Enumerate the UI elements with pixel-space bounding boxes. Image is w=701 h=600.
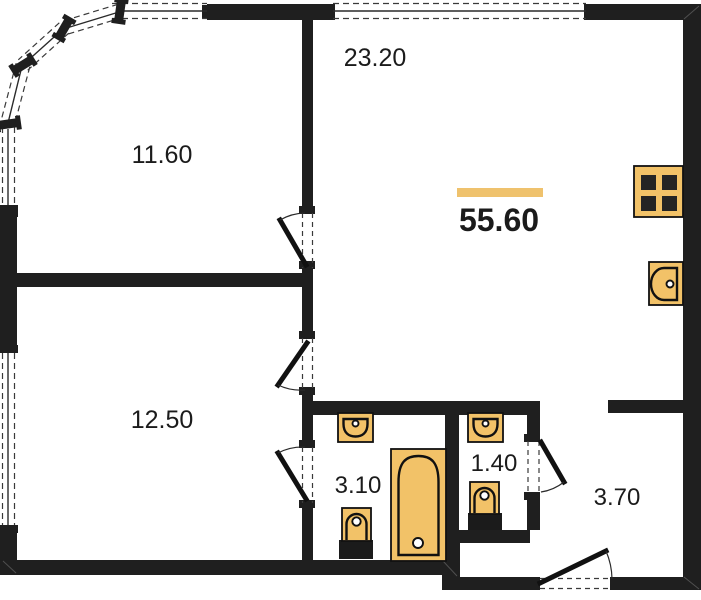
door-jamb: [524, 434, 540, 442]
door-jamb: [524, 492, 540, 500]
wall-segment: [0, 217, 17, 273]
washbasin-icon: [338, 413, 373, 442]
wall-segment: [302, 390, 313, 447]
window-left-lower: [3, 353, 15, 525]
wall-segment: [0, 560, 445, 575]
total-area: 55.60: [457, 188, 543, 238]
room-label-hall: 3.70: [594, 484, 641, 511]
room-label-bedroom-top: 11.60: [132, 141, 193, 169]
door-jamb: [299, 387, 315, 395]
wall-segment: [445, 415, 459, 530]
wall-segment: [302, 268, 313, 338]
room-label-bathroom: 3.10: [335, 472, 382, 499]
wall-segment: [608, 400, 683, 413]
door-jamb: [299, 331, 315, 339]
window-cap: [327, 4, 335, 20]
door-entrance: [540, 551, 612, 589]
wall-segment: [302, 20, 313, 213]
total-area-label: 55.60: [459, 202, 539, 238]
toilet-icon: [339, 508, 373, 559]
room-label-living-kitchen: 23.20: [344, 44, 407, 72]
wall-segment: [0, 533, 17, 575]
wall-segment: [207, 4, 327, 20]
stove-icon: [634, 166, 683, 217]
bathtub-icon: [391, 449, 446, 561]
door-bedroom-bottom: [278, 338, 313, 390]
floor-plan-page: 11.60 23.20 12.50 3.10 1.40 3.70 55.60: [0, 0, 701, 600]
wall-segment: [683, 4, 701, 590]
window-top-main: [333, 4, 586, 19]
door-bathroom: [278, 447, 313, 503]
wall-segment: [302, 503, 313, 560]
room-label-bedroom-bottom: 12.50: [131, 406, 194, 434]
window-bay-segment: [112, 4, 207, 19]
wall-segment: [459, 530, 530, 543]
windows: [0, 0, 586, 525]
toilet-icon: [468, 482, 502, 530]
kitchen-sink-icon: [649, 262, 683, 305]
door-bedroom-top: [280, 213, 313, 268]
total-area-bar: [457, 188, 543, 197]
washbasin-icon: [468, 413, 503, 442]
door-wc: [528, 441, 564, 493]
door-jamb: [610, 577, 617, 590]
bay-mullion-post: [0, 115, 22, 132]
wall-segment: [611, 577, 701, 590]
wall-segment: [0, 273, 313, 287]
window-cap: [584, 4, 592, 20]
bay-mullion-post: [51, 14, 76, 44]
wall-segment: [0, 525, 18, 533]
floor-plan: 11.60 23.20 12.50 3.10 1.40 3.70 55.60: [0, 0, 701, 600]
wall-segment: [0, 287, 17, 345]
window-left-upper: [3, 127, 15, 205]
wall-segment: [0, 345, 18, 353]
room-label-wc: 1.40: [471, 450, 518, 477]
window-cap: [202, 5, 208, 19]
wall-segment: [0, 205, 18, 217]
wall-segment: [458, 577, 539, 590]
